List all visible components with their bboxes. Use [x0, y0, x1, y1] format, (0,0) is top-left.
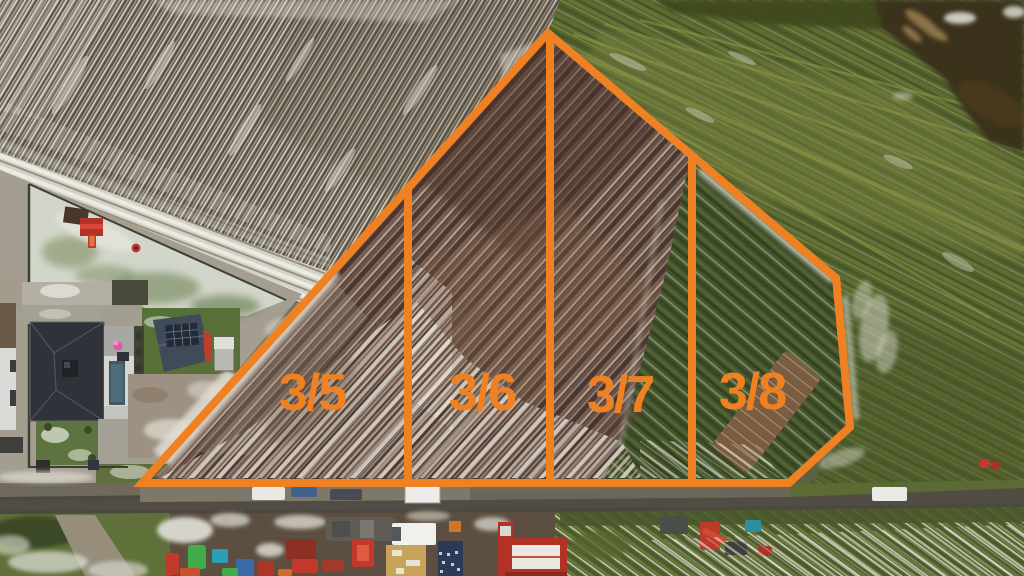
svg-text:3/8: 3/8: [719, 363, 786, 421]
svg-text:3/5: 3/5: [279, 364, 346, 422]
svg-text:3/7: 3/7: [587, 366, 653, 424]
svg-text:3/6: 3/6: [449, 364, 516, 422]
